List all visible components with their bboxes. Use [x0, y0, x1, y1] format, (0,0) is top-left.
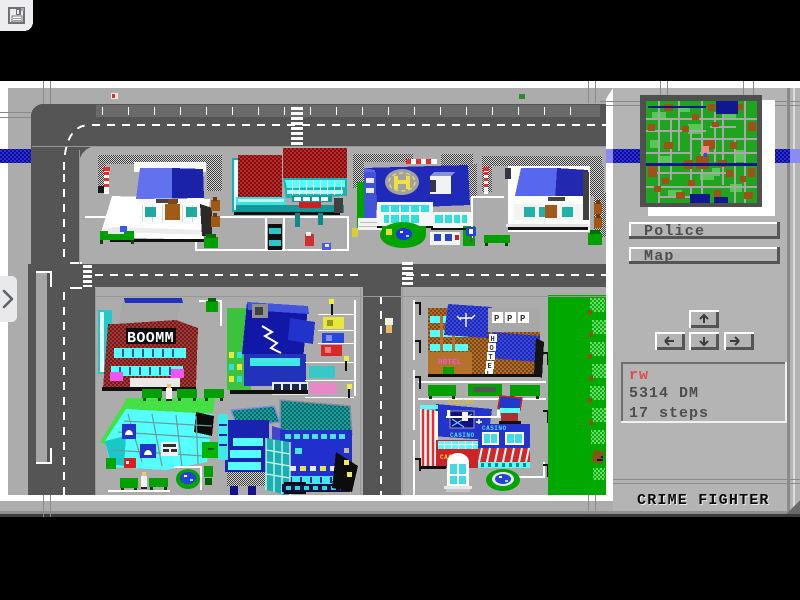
svg-text:P: P: [507, 314, 513, 324]
svg-text:rw: rw: [629, 367, 649, 384]
svg-text:Map: Map: [644, 248, 675, 265]
svg-text:T: T: [489, 354, 493, 362]
svg-text:CASINO: CASINO: [482, 425, 507, 432]
svg-text:P: P: [520, 314, 526, 324]
svg-text:5314 DM: 5314 DM: [629, 385, 699, 402]
svg-text:BOOMM: BOOMM: [127, 330, 174, 347]
svg-text:17 steps: 17 steps: [629, 405, 709, 422]
svg-text:P: P: [494, 314, 500, 324]
svg-text:CASINO: CASINO: [450, 432, 475, 439]
svg-text:HOTEL: HOTEL: [438, 359, 462, 367]
svg-text:CRIME FIGHTER: CRIME FIGHTER: [637, 492, 770, 509]
svg-text:O: O: [490, 345, 494, 353]
svg-text:H: H: [491, 336, 495, 344]
svg-text:Police: Police: [644, 223, 705, 240]
svg-text:CASINO: CASINO: [448, 399, 474, 406]
